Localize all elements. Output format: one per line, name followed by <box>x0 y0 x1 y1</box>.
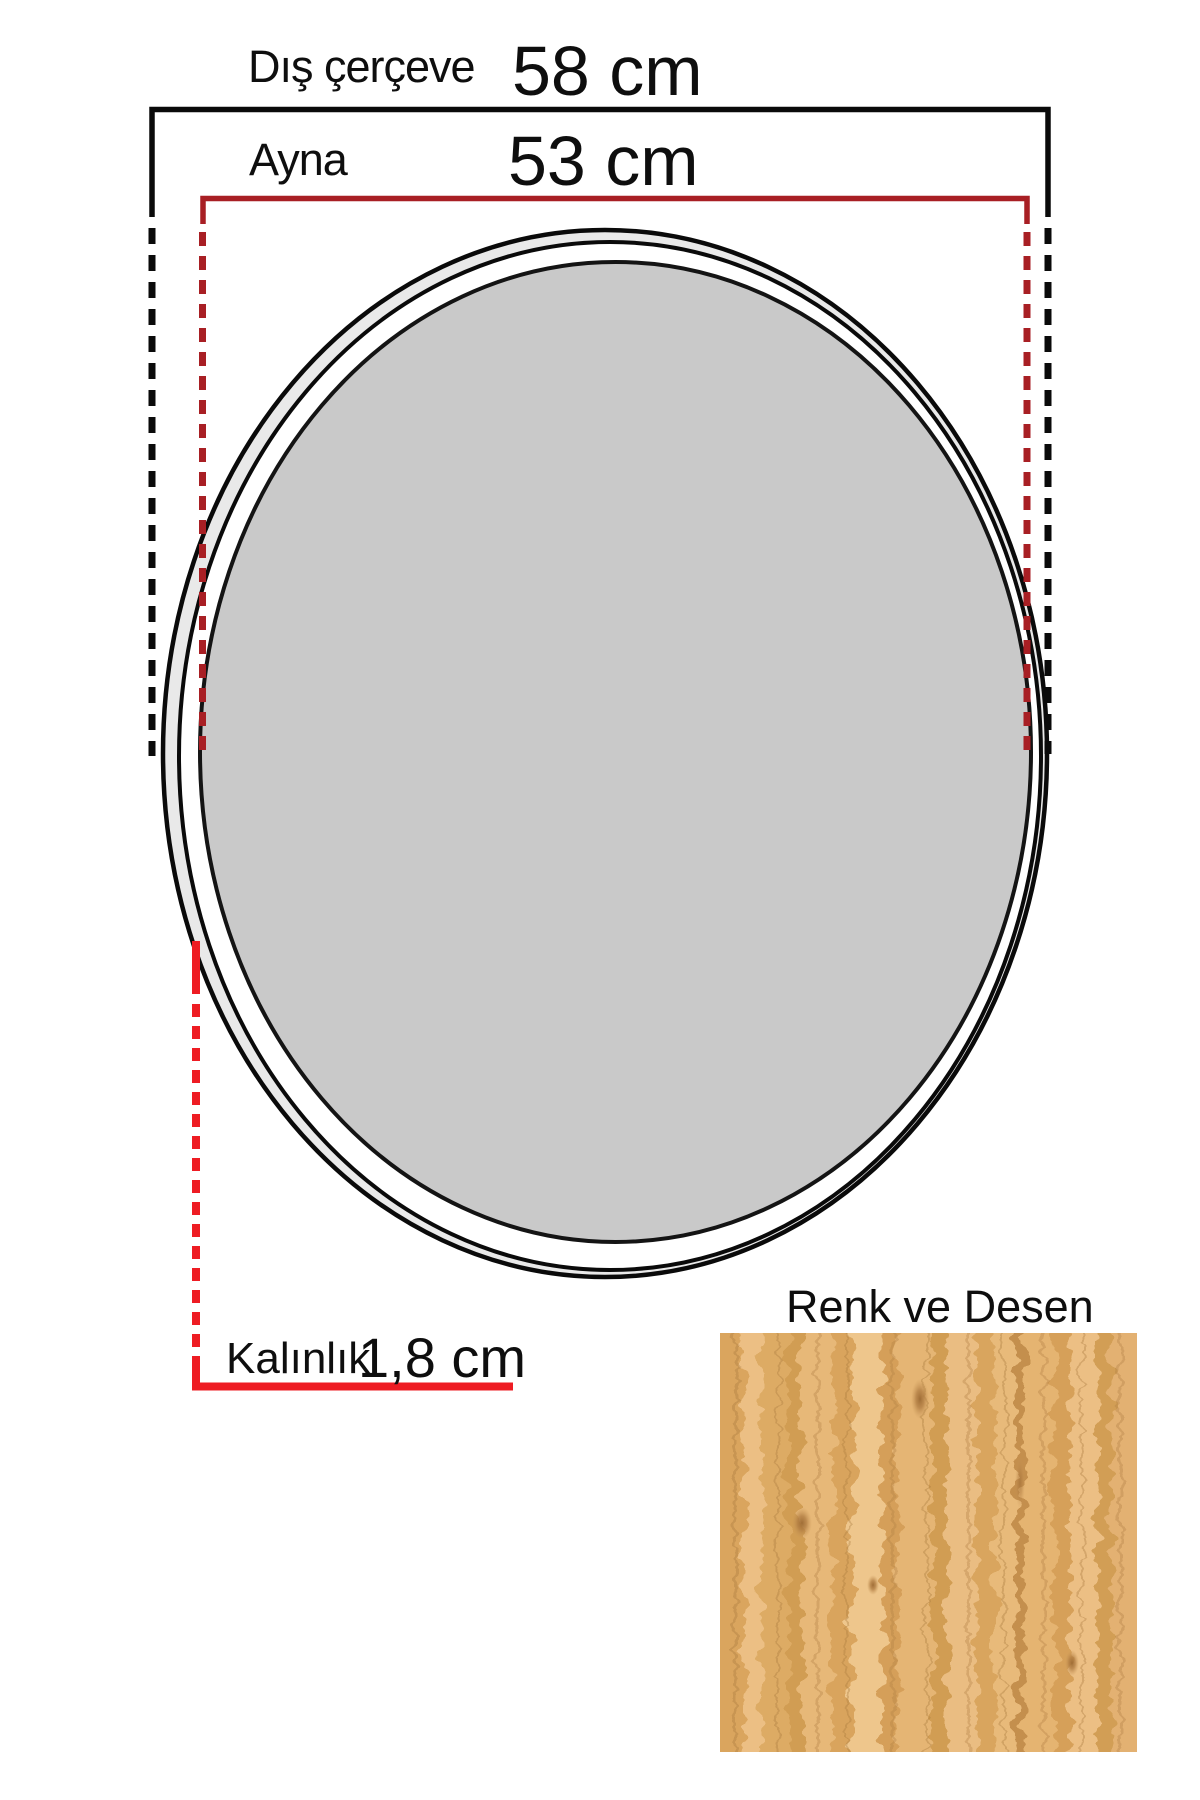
mirror-label: Ayna <box>249 137 347 182</box>
wood-texture <box>720 1333 1137 1752</box>
wood-knot <box>1015 1457 1025 1509</box>
wood-knot <box>911 1379 929 1419</box>
product-dimension-diagram: Dış çerçeve 58 cm Ayna 53 cm Kalınlık 1,… <box>0 0 1200 1800</box>
mirror-ellipse <box>200 262 1031 1242</box>
mirror-dimension-bracket <box>203 199 1027 225</box>
wood-swatch <box>720 1333 1137 1752</box>
wood-knot <box>792 1507 812 1539</box>
wood-knot <box>867 1575 879 1595</box>
thickness-label: Kalınlık <box>226 1337 370 1381</box>
color-pattern-label: Renk ve Desen <box>786 1284 1094 1329</box>
outer-frame-label: Dış çerçeve <box>248 44 475 89</box>
wood-knot <box>1065 1650 1079 1676</box>
outer-frame-value: 58 cm <box>512 36 703 106</box>
mirror-value: 53 cm <box>508 126 699 196</box>
thickness-value: 1,8 cm <box>358 1330 526 1386</box>
